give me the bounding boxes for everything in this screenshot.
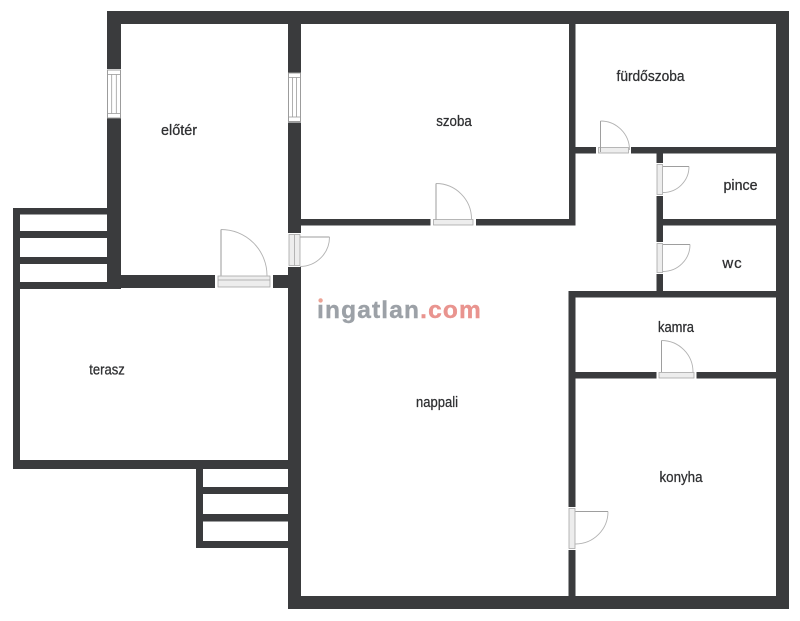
- svg-text:nappali: nappali: [416, 394, 458, 411]
- svg-text:konyha: konyha: [660, 469, 704, 486]
- svg-text:előtér: előtér: [161, 122, 197, 139]
- svg-text:kamra: kamra: [658, 319, 695, 336]
- svg-text:terasz: terasz: [89, 362, 125, 379]
- svg-text:szoba: szoba: [436, 113, 472, 130]
- svg-text:wc: wc: [721, 255, 742, 272]
- svg-text:ıngatlan.com: ıngatlan.com: [317, 297, 482, 324]
- svg-text:pince: pince: [724, 177, 758, 194]
- svg-text:fürdőszoba: fürdőszoba: [617, 68, 686, 85]
